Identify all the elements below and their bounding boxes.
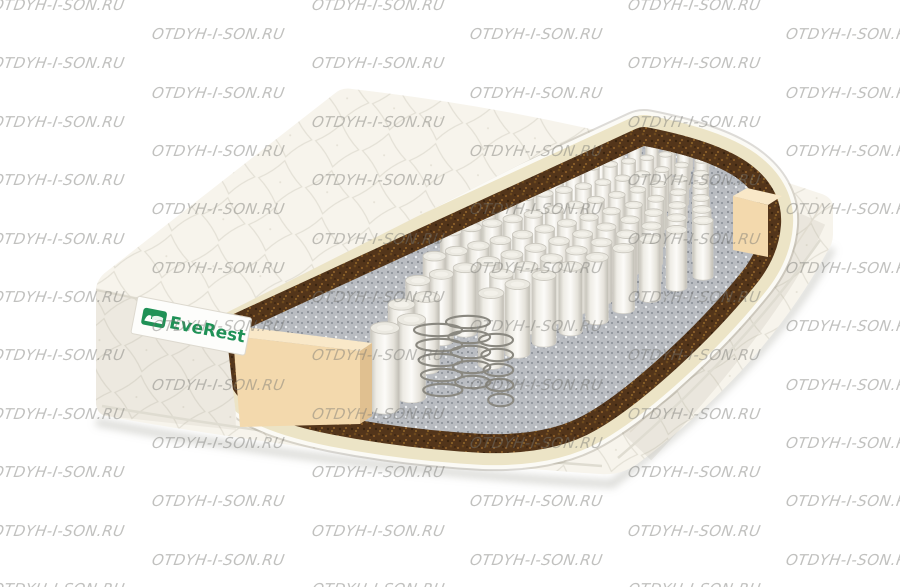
product-photo: EveRest OTDYH-I-SON.RUOTDYH-I-SON.RUOTDY… — [0, 0, 900, 587]
mattress-body: EveRest — [96, 89, 833, 475]
edge-foam-left-block — [233, 327, 372, 427]
mattress-illustration: EveRest — [0, 0, 900, 587]
